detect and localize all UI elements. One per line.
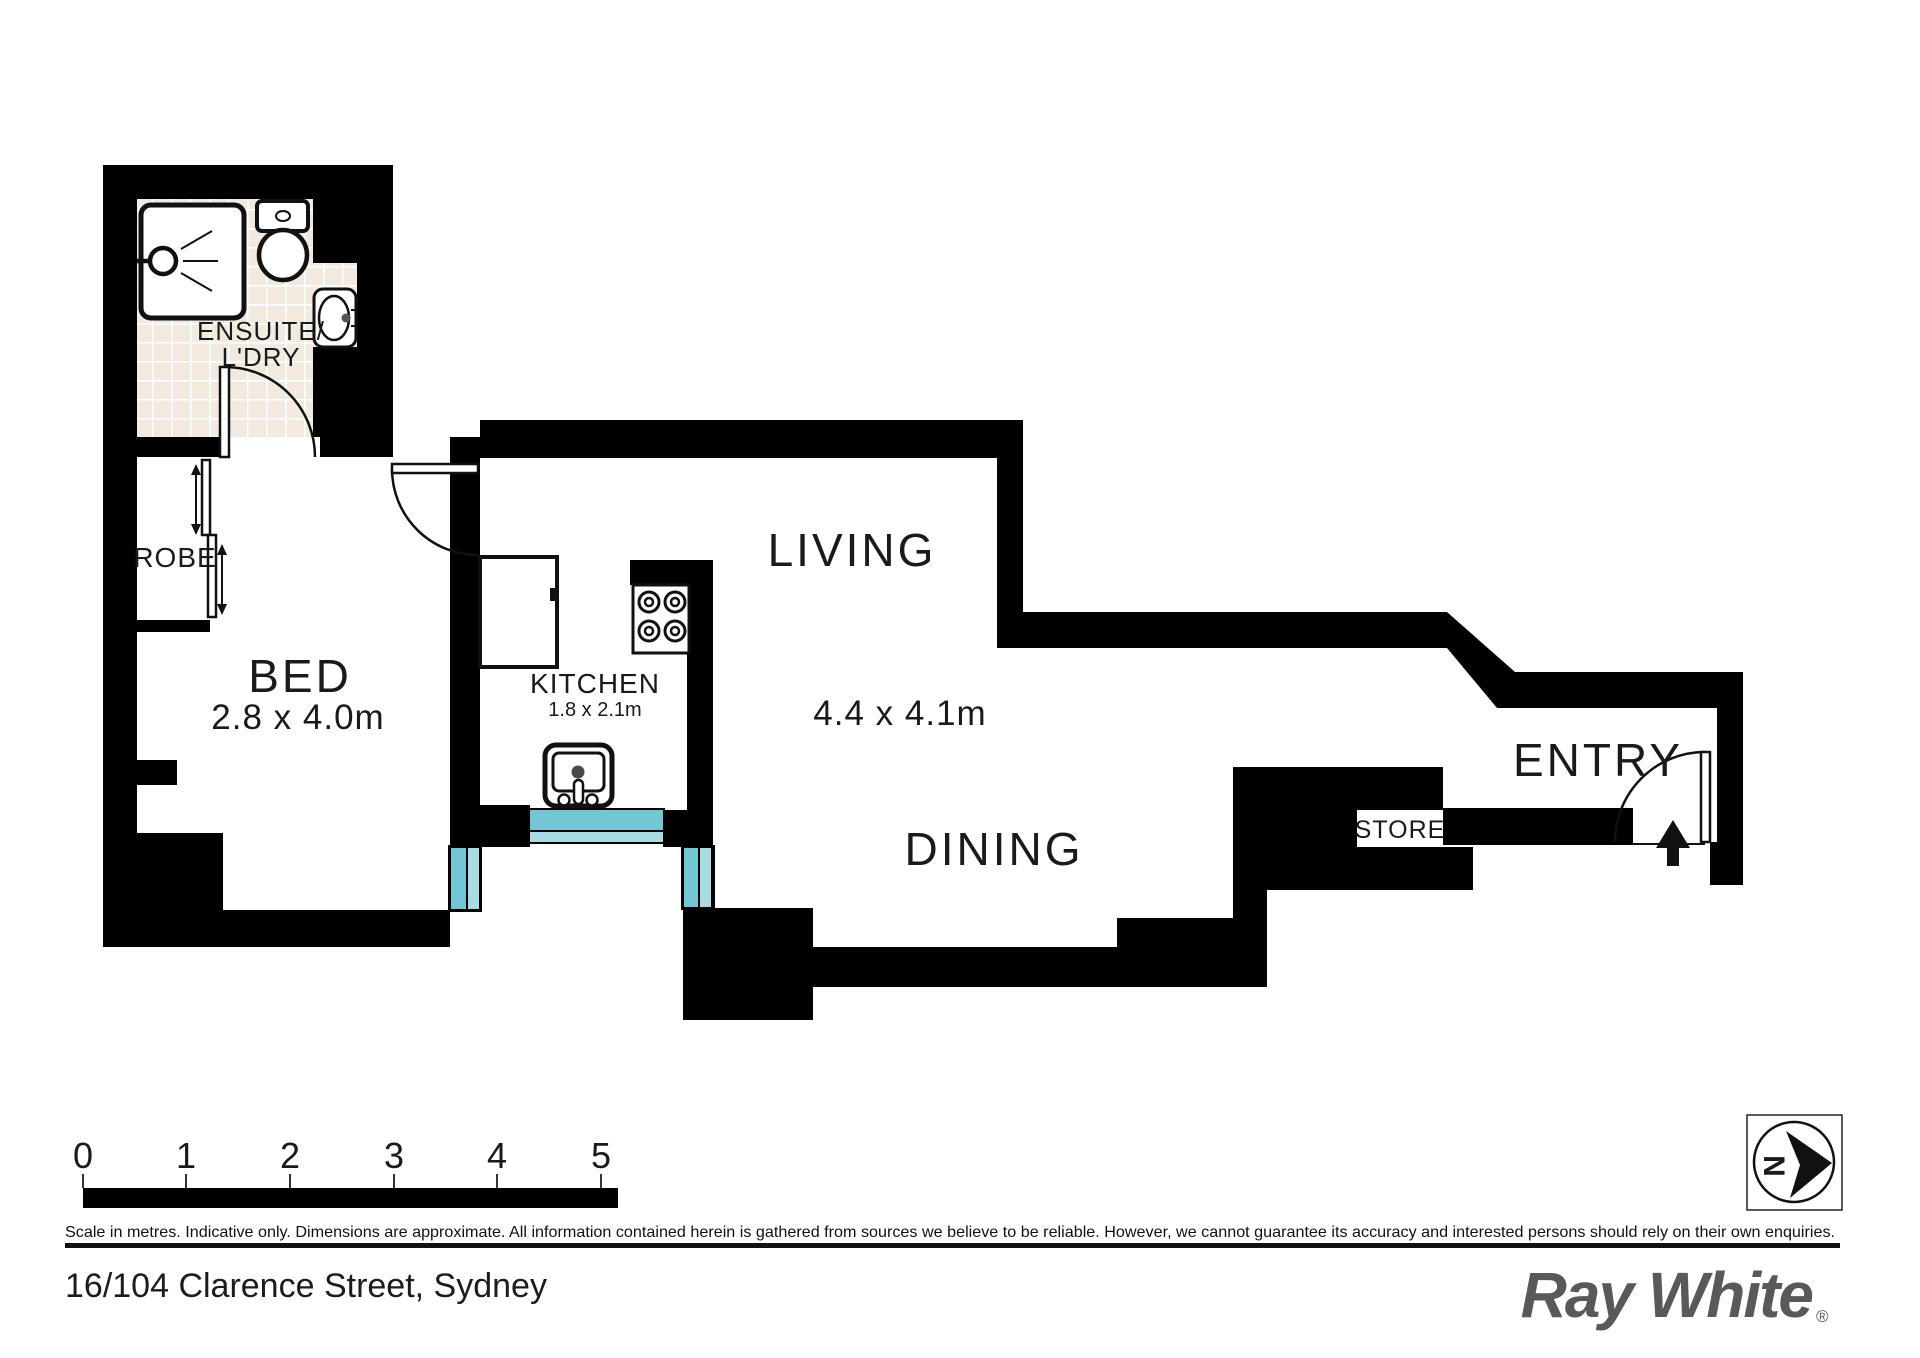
shower-icon — [137, 205, 244, 318]
wall-segment — [450, 437, 480, 847]
bed-label: BED — [248, 650, 352, 702]
stove-icon — [633, 585, 689, 653]
brand-registered-mark: ® — [1816, 1307, 1829, 1326]
wall-segment — [1357, 847, 1473, 890]
ensuite-label2: L'DRY — [222, 342, 301, 372]
robe-label: ROBE — [133, 542, 216, 573]
wall-segment — [103, 833, 223, 910]
bed-dims: 2.8 x 4.0m — [211, 698, 384, 737]
wall-segment — [1443, 808, 1633, 845]
address-text: 16/104 Clarence Street, Sydney — [65, 1267, 547, 1305]
kitchen-dims: 1.8 x 2.1m — [548, 699, 641, 721]
window-pane — [468, 848, 479, 909]
floorplan-svg: ENSUITE/ L'DRY ROBE BED 2.8 x 4.0m KITCH… — [0, 0, 1920, 1358]
window-pane — [684, 848, 698, 907]
wall-segment — [137, 760, 177, 785]
kitchen-bench — [480, 557, 559, 667]
wall-segment — [630, 560, 713, 585]
scale-tick-label: 0 — [73, 1135, 93, 1176]
wall-segment — [687, 585, 713, 810]
wall-segment — [480, 420, 1023, 458]
floorplan-page: ENSUITE/ L'DRY ROBE BED 2.8 x 4.0m KITCH… — [0, 0, 1920, 1358]
wall-segment — [1717, 708, 1743, 845]
wall-segment — [103, 620, 210, 632]
scale-tick-label: 4 — [487, 1135, 507, 1176]
wall-segment — [997, 612, 1447, 648]
wall-segment — [1117, 918, 1233, 947]
store-label: STORE — [1355, 816, 1446, 844]
living-dims: 4.4 x 4.1m — [813, 694, 986, 733]
wall-segment — [450, 805, 530, 847]
wall-segment — [1497, 672, 1743, 708]
wall-segment — [683, 908, 813, 1020]
wall-segment — [813, 947, 1267, 987]
wall-segment — [103, 910, 450, 947]
wall-segment — [1710, 842, 1743, 885]
window-pane — [700, 848, 711, 907]
scale-tick-label: 1 — [176, 1135, 196, 1176]
compass-letter: N — [1757, 1155, 1790, 1177]
wall-segment — [1233, 767, 1443, 810]
north-compass-icon: N — [1747, 1115, 1842, 1210]
toilet-icon — [257, 201, 308, 280]
living-label: LIVING — [768, 524, 937, 576]
scale-bar-rule — [83, 1188, 618, 1208]
kitchen-label: KITCHEN — [530, 668, 660, 699]
wall-segment — [663, 810, 713, 847]
ensuite-door-opening — [222, 437, 320, 457]
footer-rule — [65, 1243, 1840, 1248]
window-pane — [530, 810, 663, 830]
disclaimer-text: Scale in metres. Indicative only. Dimens… — [65, 1224, 1835, 1241]
window-pane — [451, 848, 466, 909]
sink-icon — [545, 745, 612, 806]
window-pane — [530, 832, 663, 842]
dining-label: DINING — [905, 823, 1084, 875]
brand-logo: Ray White — [1521, 1259, 1813, 1331]
entry-label: ENTRY — [1513, 734, 1683, 786]
scale-tick-label: 5 — [591, 1135, 611, 1176]
scale-tick-label: 2 — [280, 1135, 300, 1176]
wall-segment — [997, 458, 1023, 618]
scale-tick-label: 3 — [384, 1135, 404, 1176]
wall-segment — [320, 437, 392, 457]
